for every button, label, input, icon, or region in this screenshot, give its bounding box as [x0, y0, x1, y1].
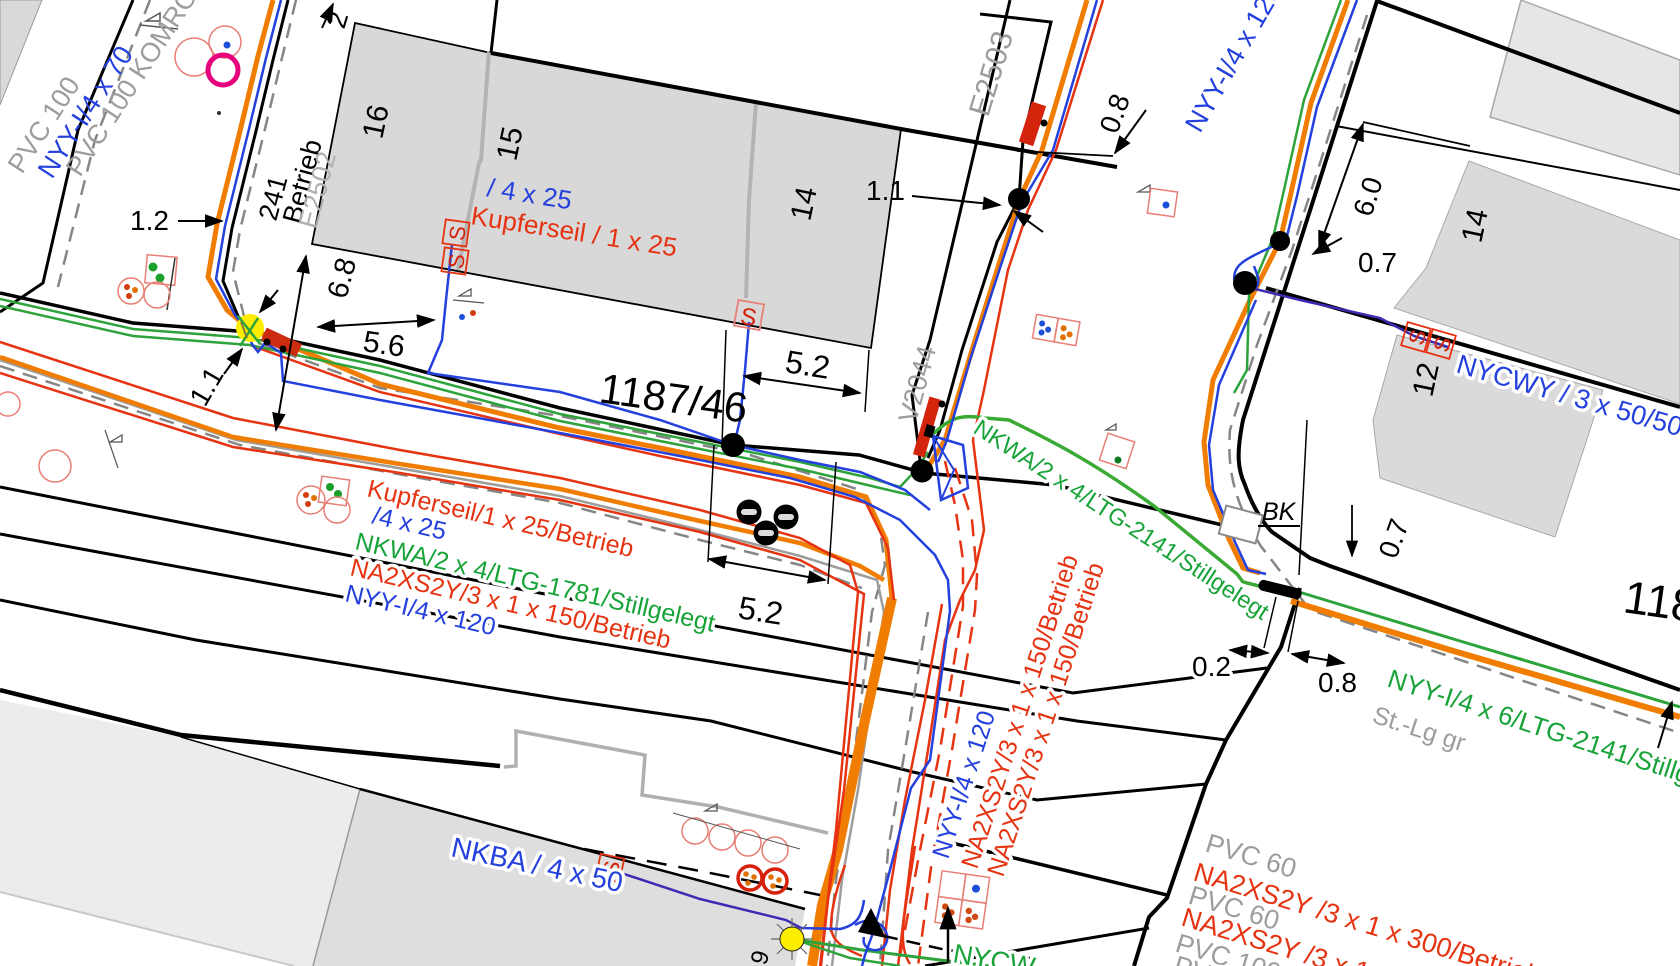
svg-text:12: 12 [1407, 360, 1446, 400]
svg-text:5.2: 5.2 [783, 343, 833, 386]
svg-text:5.2: 5.2 [736, 589, 786, 632]
svg-text:1.1: 1.1 [866, 175, 905, 206]
svg-text:5.6: 5.6 [361, 325, 407, 363]
svg-text:15: 15 [491, 124, 530, 164]
svg-text:0.2: 0.2 [1192, 651, 1231, 682]
svg-text:14: 14 [1456, 206, 1495, 246]
svg-text:16: 16 [357, 102, 396, 142]
svg-text:118: 118 [1621, 570, 1680, 632]
svg-text:0.7: 0.7 [1358, 247, 1397, 278]
svg-text:BK: BK [1262, 498, 1297, 526]
svg-text:0.8: 0.8 [1318, 667, 1357, 698]
svg-text:1.2: 1.2 [130, 205, 169, 236]
svg-text:14: 14 [785, 184, 824, 224]
